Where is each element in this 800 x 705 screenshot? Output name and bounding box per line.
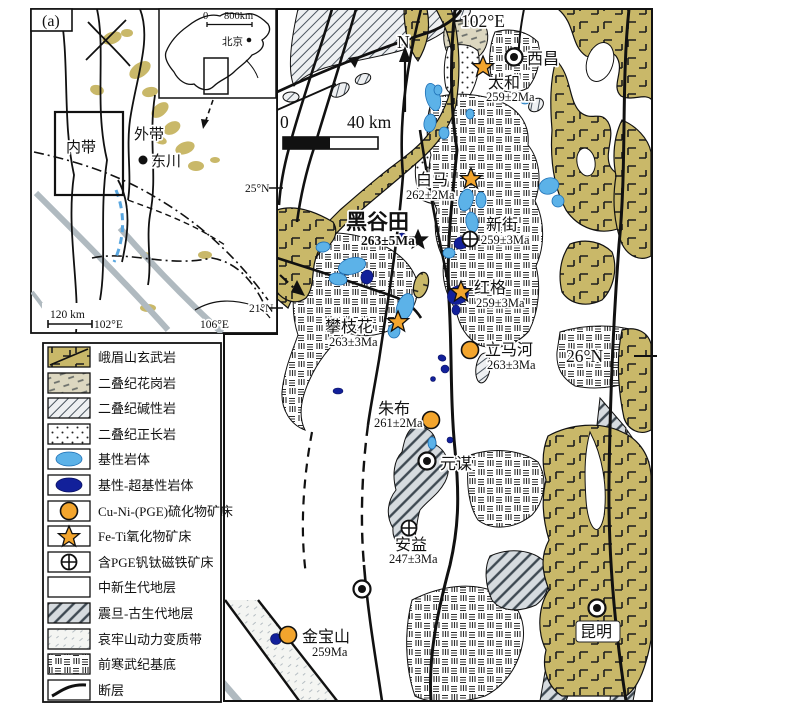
scale-value: 40 km [347, 112, 392, 132]
site-age: 247±3Ma [389, 552, 438, 566]
site-age: 263±3Ma [329, 335, 378, 349]
legend-row-mafic: 基性岩体 [48, 449, 150, 469]
beijing-label: 北京 [222, 35, 243, 48]
legend-label: 基性岩体 [98, 452, 150, 467]
legend-label: 中新生代地层 [98, 580, 176, 595]
inset-lon-west: 102°E [94, 319, 123, 331]
legend-row-alkaline: 二叠纪碱性岩 [48, 398, 176, 418]
city-label: 西昌 [527, 51, 559, 68]
china-scale-label: 800km [224, 11, 253, 22]
site-label: 新街 [486, 216, 518, 234]
site-label: 立马河 [485, 341, 533, 359]
city-label: 元谋 [440, 455, 472, 473]
pge-magnetite-icon [402, 521, 417, 536]
outer-belt-label: 外带 [134, 126, 164, 143]
legend-label: 二叠纪正长岩 [98, 427, 176, 442]
legend-row-syenite: 二叠纪正长岩 [48, 424, 176, 444]
city-label: 昆明 [580, 624, 612, 641]
site-label: 金宝山 [302, 628, 350, 646]
inset-scale-label: 120 km [50, 309, 85, 321]
site-label: 攀枝花 [325, 318, 373, 336]
site-age: 263±3Ma [487, 358, 536, 372]
inset-map: 内带 外带 东川 120 km 102°E 106°E 25°N 21°N (a… [31, 9, 283, 333]
figure-canvas: N 0 40 km 102°E 26°N 西昌 元谋 昆明 [0, 0, 800, 705]
site-age: 259±3Ma [476, 296, 525, 310]
legend-row-fault: 断层 [48, 680, 124, 700]
town-symbol-unnamed [354, 581, 371, 598]
map-longitude-label: 102°E [461, 11, 505, 31]
cu-ni-circle-icon [423, 412, 440, 429]
cu-ni-circle-icon [280, 627, 297, 644]
north-label: N [397, 32, 410, 52]
legend-label: 震旦-古生代地层 [98, 606, 193, 621]
inset-scale-bar: 120 km [42, 303, 100, 329]
site-age: 259±2Ma [486, 90, 535, 104]
legend-row-meso-cenozoic: 中新生代地层 [48, 577, 176, 597]
site-age: 262±2Ma [406, 188, 455, 202]
town-symbol [589, 600, 606, 617]
legend-label: 二叠纪花岗岩 [98, 376, 176, 391]
inset-lon-east: 106°E [200, 319, 229, 331]
legend-label: 含PGE钒钛磁铁矿床 [98, 555, 214, 570]
legend-row-ultramafic: 基性-超基性岩体 [48, 475, 193, 495]
legend-label: Cu-Ni-(PGE)硫化物矿床 [98, 504, 233, 519]
inset-lat-north: 25°N [245, 183, 270, 195]
town-symbol [419, 453, 436, 470]
map-latitude-label: 26°N [566, 346, 603, 366]
site-age: 261±2Ma [374, 416, 423, 430]
legend-label: 峨眉山玄武岩 [98, 350, 176, 365]
legend-label: 断层 [98, 683, 124, 698]
legend-row-cu-ni: Cu-Ni-(PGE)硫化物矿床 [48, 501, 233, 521]
cu-ni-circle-icon [462, 342, 479, 359]
legend-label: 基性-超基性岩体 [98, 478, 193, 493]
legend: 峨眉山玄武岩 二叠纪花岗岩 二叠纪碱性岩 二叠纪正长岩 基性岩体 基性-超基性岩… [43, 343, 233, 702]
site-label: 红格 [474, 279, 506, 297]
panel-label: (a) [42, 13, 60, 30]
site-label: 黑谷田 [346, 210, 409, 234]
city-xichang: 西昌 [506, 49, 560, 69]
legend-label: 前寒武纪基底 [98, 657, 176, 672]
legend-label: 二叠纪碱性岩 [98, 401, 176, 416]
legend-label: 哀牢山动力变质带 [98, 632, 202, 647]
scale-zero: 0 [280, 112, 289, 132]
legend-row-granite: 二叠纪花岗岩 [48, 373, 176, 393]
city-yuanmou: 元谋 [419, 453, 473, 474]
legend-row-ailaoshan: 哀牢山动力变质带 [48, 629, 202, 649]
legend-row-pge-magnetite: 含PGE钒钛磁铁矿床 [48, 552, 214, 572]
site-label: 白马 [416, 171, 448, 189]
pge-magnetite-icon [463, 232, 478, 247]
dongchuan-label: 东川 [151, 153, 181, 170]
legend-row-sinian-paleozoic: 震旦-古生代地层 [48, 603, 193, 623]
town-symbol [506, 49, 523, 66]
inner-belt-label: 内带 [66, 139, 96, 156]
dongchuan-dot [139, 156, 148, 165]
legend-row-precambrian: 前寒武纪基底 [48, 654, 176, 674]
site-age: 259±3Ma [481, 233, 530, 247]
inset-lat-south: 21°N [249, 303, 274, 315]
site-age: 263±5Ma [361, 233, 415, 248]
legend-row-basalt: 峨眉山玄武岩 [48, 347, 176, 367]
china-scale-zero: 0 [203, 11, 208, 22]
legend-row-fe-ti: Fe-Ti氧化物矿床 [48, 526, 191, 546]
beijing-dot [247, 38, 252, 43]
geologic-map-figure: N 0 40 km 102°E 26°N 西昌 元谋 昆明 [0, 0, 800, 705]
site-age: 259Ma [312, 645, 348, 659]
legend-label: Fe-Ti氧化物矿床 [98, 529, 191, 544]
